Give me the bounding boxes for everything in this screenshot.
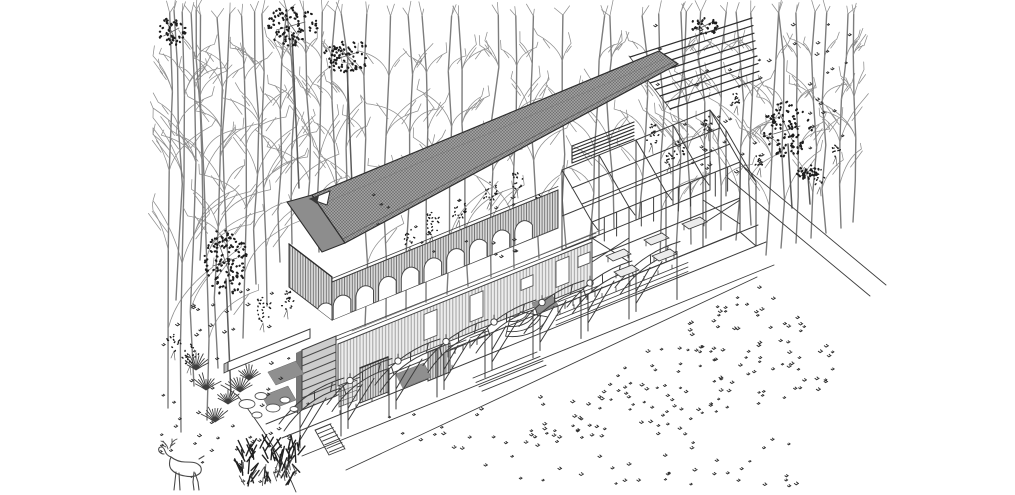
deer-illustration	[159, 439, 204, 490]
bare-tree	[819, 6, 868, 228]
architectural-drawing-page	[0, 0, 1015, 495]
dotted-shrub	[732, 94, 739, 116]
spiky-grass-plant	[185, 353, 208, 370]
garden-rock	[239, 400, 255, 409]
dotted-shrub	[484, 182, 497, 211]
bare-tree	[614, 6, 649, 218]
hanging-lamp	[347, 377, 353, 383]
bare-tree	[822, 0, 849, 233]
sprig-field	[388, 396, 545, 450]
hanging-lamp	[395, 358, 401, 364]
sprig-field	[504, 427, 798, 487]
garden-rock	[255, 393, 267, 400]
dotted-shrub	[167, 335, 181, 361]
foliage-tree	[160, 19, 186, 45]
bare-tree	[148, 1, 216, 408]
bare-tree	[176, 0, 244, 260]
roof-main-plane	[312, 51, 678, 243]
dotted-shrub	[647, 124, 659, 154]
foliage-tree	[692, 18, 717, 34]
garden-rock	[280, 397, 290, 403]
garden-rock	[266, 404, 280, 412]
roof-fascia-louvers	[572, 122, 634, 163]
garden-rock	[252, 412, 262, 418]
dotted-shrub	[282, 291, 294, 319]
hanging-lamp	[539, 299, 545, 305]
wall-door-opening	[470, 291, 483, 322]
garden-rock	[290, 407, 298, 412]
spiky-grass-plant	[201, 407, 228, 422]
dotted-shrub	[513, 173, 523, 198]
dark-bush	[234, 435, 305, 486]
spiky-grass-plant	[218, 389, 240, 404]
wall-door-opening	[556, 256, 569, 287]
wall-door-opening	[424, 309, 437, 340]
dotted-shrub	[258, 298, 271, 332]
side-path-band	[728, 167, 886, 296]
exploded-axonometric-illustration	[0, 0, 1015, 495]
foliage-tree	[324, 42, 366, 186]
hanging-lamp	[443, 338, 449, 344]
spiky-grass-plant	[239, 364, 261, 380]
hanging-lamp	[491, 319, 497, 325]
